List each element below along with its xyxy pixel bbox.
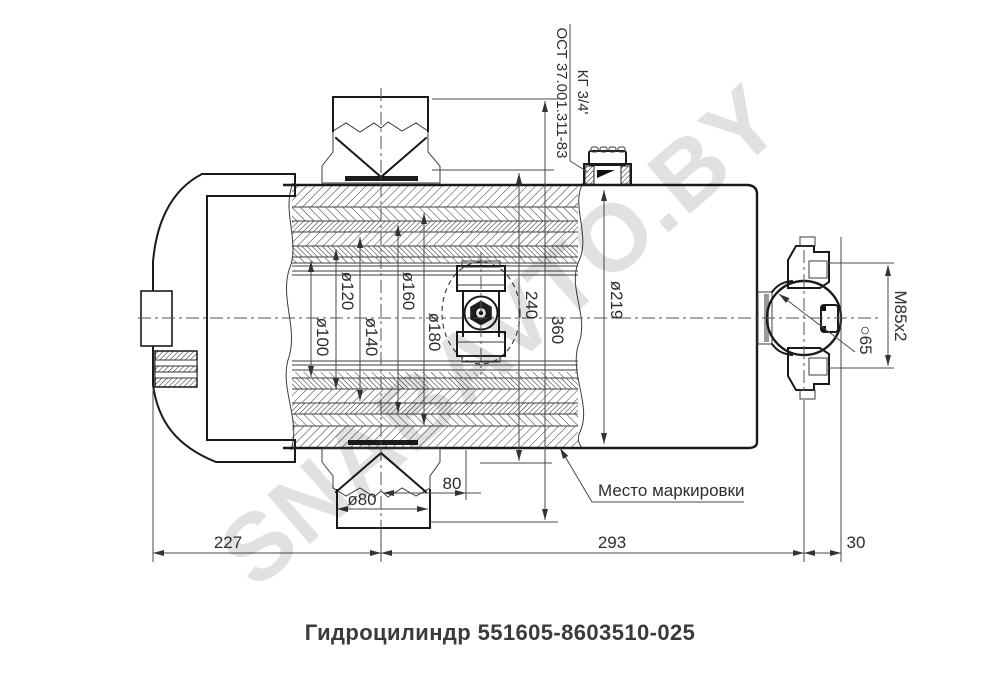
dim-d100-label: ø100 — [313, 318, 332, 357]
dim-293-label: 293 — [598, 533, 626, 552]
port-thread-label: КГ 3/4' — [574, 70, 591, 115]
port-standard-label: ОСТ 37.001.311-83 — [553, 28, 570, 159]
dim-d140-label: ø140 — [362, 318, 381, 357]
hydraulic-cylinder-drawing: ø100 ø120 ø140 ø160 ø180 ø219 240 360 ø8… — [0, 0, 1000, 620]
marking-note: Место маркировки — [560, 448, 744, 502]
page-title: Гидроцилиндр 551605-8603510-025 — [0, 620, 1000, 646]
drawing-page: ø100 ø120 ø140 ø160 ø180 ø219 240 360 ø8… — [0, 0, 1000, 700]
dim-sphere65-label: ○65 — [856, 325, 875, 354]
dim-d120-label: ø120 — [338, 272, 357, 311]
watermark: SNABAVTO.BY — [200, 65, 801, 607]
port-spec-callout: КГ 3/4' ОСТ 37.001.311-83 — [553, 24, 591, 172]
marking-note-label: Место маркировки — [598, 481, 744, 500]
dim-m85-label: M85x2 — [891, 290, 910, 341]
dim-80-label: 80 — [443, 474, 462, 493]
cap-port-fitting — [155, 351, 197, 387]
dim-30-label: 30 — [847, 533, 866, 552]
dim-d160-label: ø160 — [399, 272, 418, 311]
